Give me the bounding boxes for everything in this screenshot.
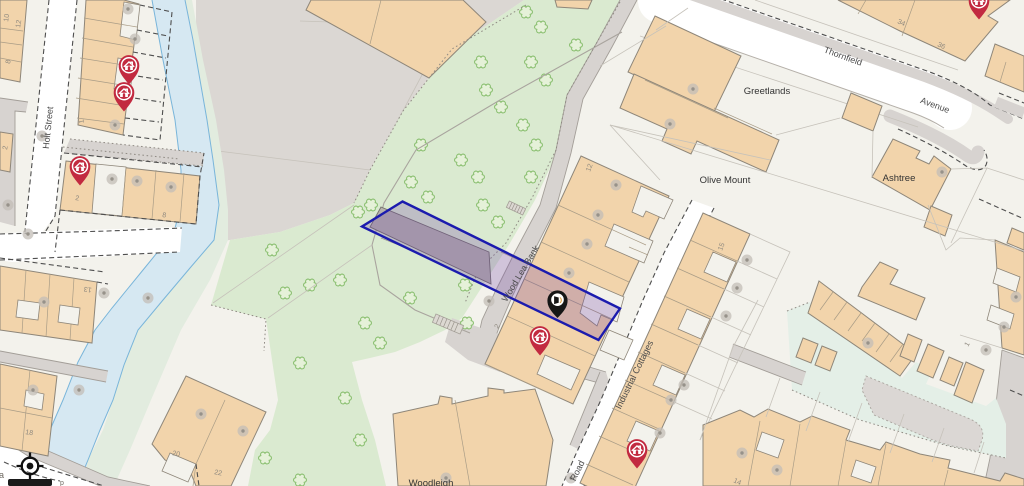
svg-text:18: 18: [25, 429, 34, 437]
svg-text:a: a: [0, 470, 4, 480]
svg-text:p: p: [60, 480, 64, 486]
svg-text:Ashtree: Ashtree: [883, 173, 916, 184]
svg-text:10: 10: [3, 13, 11, 22]
svg-text:Greetlands: Greetlands: [744, 86, 791, 97]
svg-text:12: 12: [15, 19, 23, 28]
svg-text:Woodleigh: Woodleigh: [409, 478, 454, 486]
svg-text:13: 13: [83, 285, 92, 293]
svg-text:Olive Mount: Olive Mount: [700, 175, 751, 186]
